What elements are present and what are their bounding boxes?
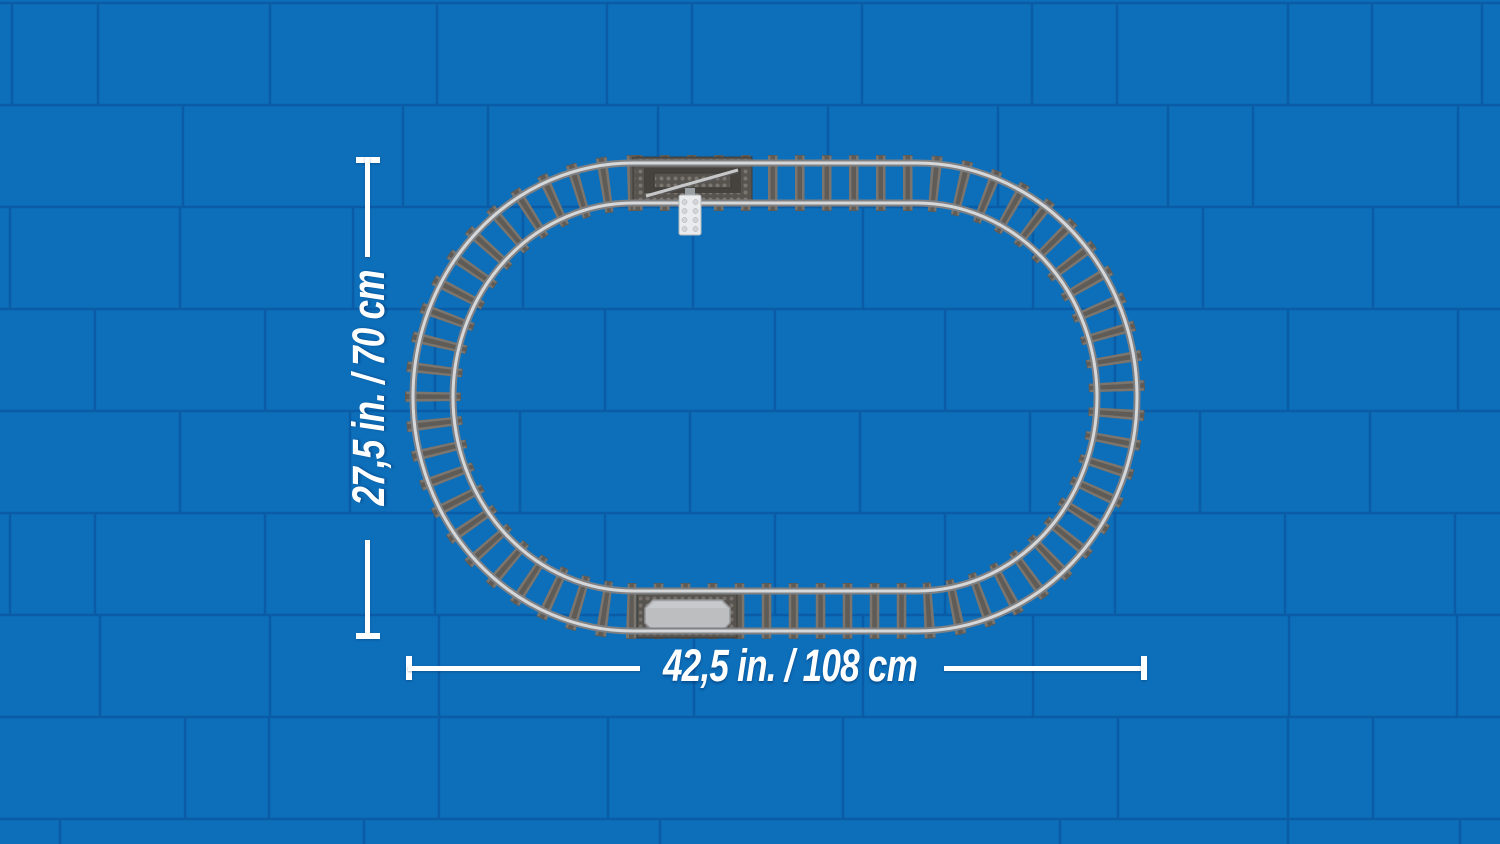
brick-wall-background bbox=[0, 0, 1500, 844]
lever-stud bbox=[682, 226, 687, 231]
switch-lever bbox=[679, 188, 701, 235]
lever-stud bbox=[693, 217, 698, 222]
width-dimension-line-right bbox=[944, 666, 1144, 671]
lever-stud bbox=[693, 208, 698, 213]
height-dimension-line-lower bbox=[365, 540, 370, 636]
stop-track-plate-highlight bbox=[648, 602, 727, 608]
width-dimension-label: 42,5 in. / 108 cm bbox=[663, 640, 917, 692]
scene-svg bbox=[0, 0, 1500, 844]
lever-stud bbox=[693, 226, 698, 231]
height-dimension-bottom-cap bbox=[356, 633, 380, 639]
lever-stud bbox=[682, 208, 687, 213]
lever-stud bbox=[682, 217, 687, 222]
height-dimension-label: 27,5 in. / 70 cm bbox=[343, 270, 395, 505]
lever-stud bbox=[693, 199, 698, 204]
product-dimension-diagram: 27,5 in. / 70 cm 42,5 in. / 108 cm bbox=[0, 0, 1500, 844]
height-dimension-line-upper bbox=[365, 157, 370, 257]
width-dimension-line-left bbox=[408, 666, 640, 671]
width-dimension-right-cap bbox=[1141, 656, 1147, 680]
lever-stud bbox=[682, 199, 687, 204]
